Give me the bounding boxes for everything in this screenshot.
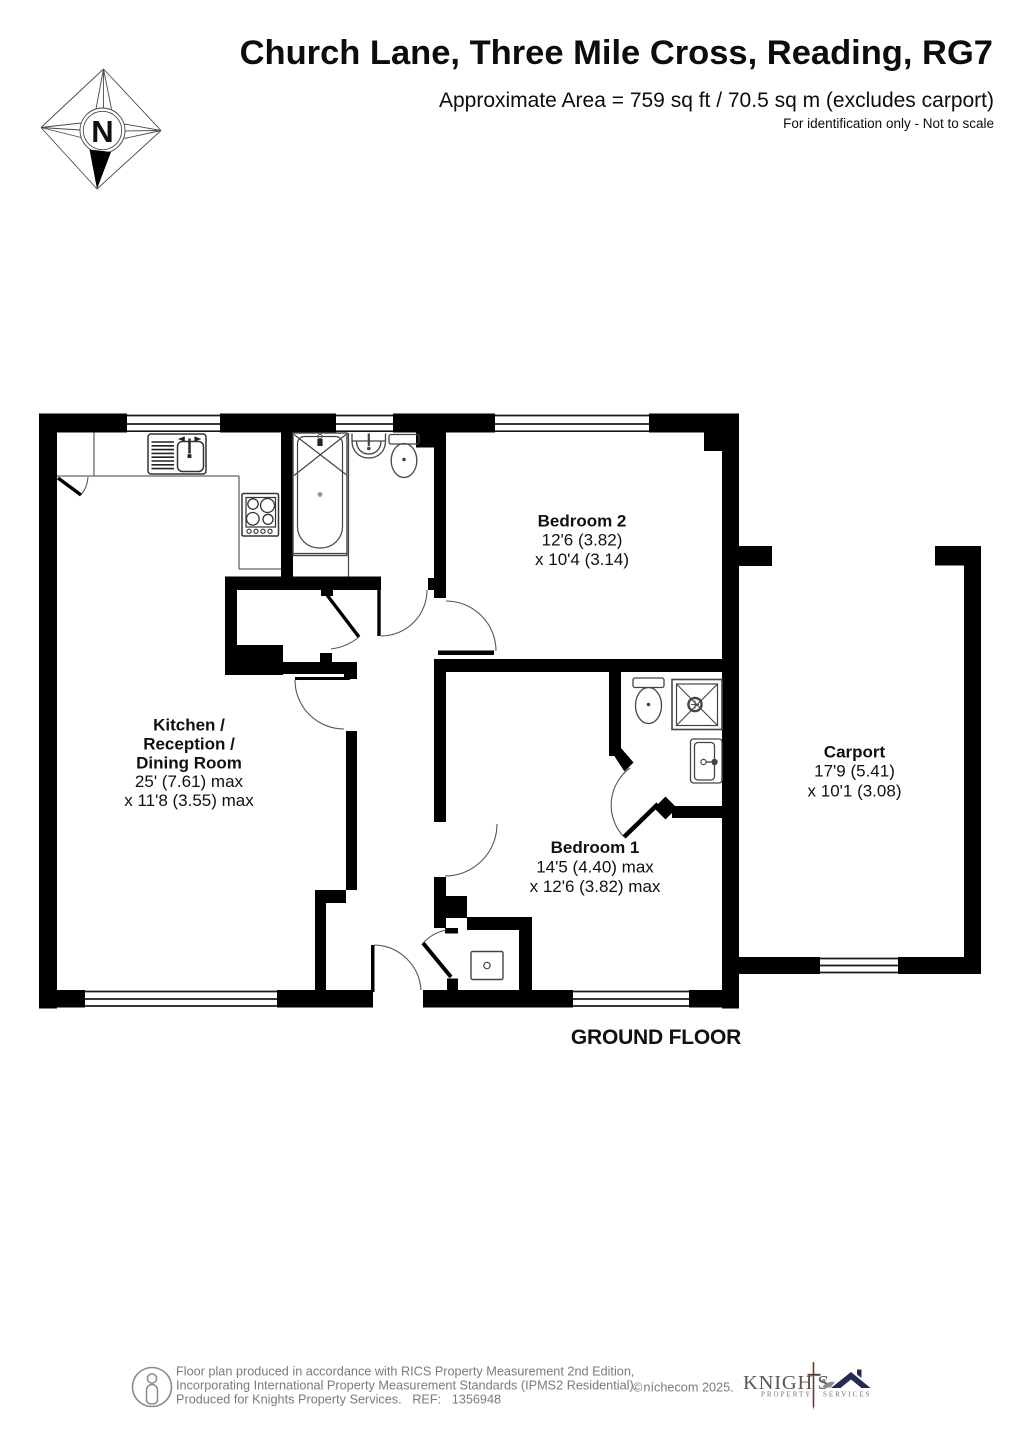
svg-text:12'6 (3.82): 12'6 (3.82): [542, 531, 623, 550]
svg-text:x 10'4 (3.14): x 10'4 (3.14): [535, 550, 629, 569]
svg-text:25' (7.61) max: 25' (7.61) max: [135, 772, 244, 791]
svg-text:SERVICES: SERVICES: [823, 1391, 872, 1399]
svg-text:Carport: Carport: [824, 743, 886, 762]
svg-text:Incorporating International Pr: Incorporating International Property Mea…: [176, 1379, 637, 1393]
svg-text:x 10'1 (3.08): x 10'1 (3.08): [808, 782, 902, 801]
svg-text:Kitchen /: Kitchen /: [153, 716, 225, 735]
svg-text:PROPERTY: PROPERTY: [761, 1391, 812, 1399]
svg-text:For identification only - Not: For identification only - Not to scale: [783, 116, 994, 131]
svg-text:N: N: [91, 114, 113, 149]
svg-text:Bedroom 2: Bedroom 2: [538, 511, 627, 530]
svg-text:© níchecom 2025.: © níchecom 2025.: [633, 1381, 734, 1395]
svg-text:Dining Room: Dining Room: [136, 753, 242, 772]
svg-text:Produced for Knights Property: Produced for Knights Property Services. …: [176, 1393, 501, 1407]
svg-text:Bedroom 1: Bedroom 1: [551, 838, 640, 857]
svg-text:Reception /: Reception /: [143, 735, 235, 754]
svg-text:x 12'6 (3.82) max: x 12'6 (3.82) max: [530, 877, 661, 896]
svg-text:x 11'8 (3.55) max: x 11'8 (3.55) max: [124, 791, 254, 810]
svg-text:Floor plan produced in accorda: Floor plan produced in accordance with R…: [176, 1365, 634, 1379]
svg-text:Approximate Area = 759 sq ft /: Approximate Area = 759 sq ft / 70.5 sq m…: [439, 89, 994, 112]
svg-text:Church Lane, Three Mile Cross,: Church Lane, Three Mile Cross, Reading, …: [240, 34, 993, 72]
svg-text:14'5 (4.40) max: 14'5 (4.40) max: [536, 858, 654, 877]
svg-text:GROUND FLOOR: GROUND FLOOR: [571, 1026, 741, 1049]
svg-text:17'9 (5.41): 17'9 (5.41): [814, 762, 895, 781]
